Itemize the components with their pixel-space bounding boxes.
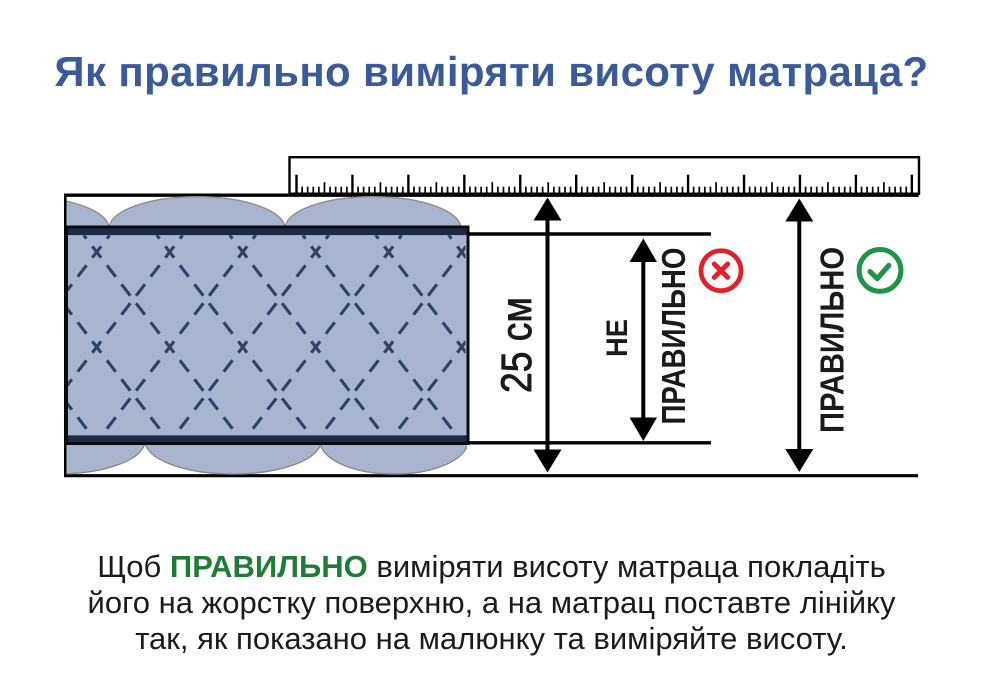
svg-text:НЕ: НЕ <box>601 319 634 357</box>
svg-text:ПРАВИЛЬНО: ПРАВИЛЬНО <box>655 248 692 425</box>
svg-text:ПРАВИЛЬНО: ПРАВИЛЬНО <box>814 247 851 433</box>
svg-text:25 см: 25 см <box>493 297 541 393</box>
